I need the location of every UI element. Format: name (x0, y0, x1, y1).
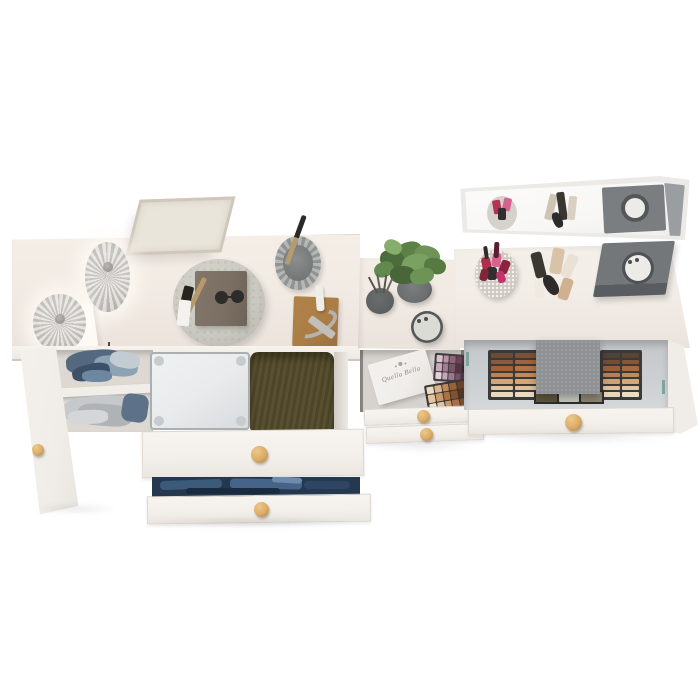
drawer-knob (565, 414, 582, 431)
floor-shadow (475, 434, 675, 442)
floor-shadow (140, 518, 360, 527)
brand-crest (398, 361, 403, 366)
cushion (250, 352, 334, 430)
suitcase-corner (236, 356, 246, 366)
hinge-mark (662, 380, 665, 394)
vanity (452, 176, 700, 438)
notebook-button (231, 290, 244, 303)
kit-eyeshadow-left (488, 350, 540, 400)
round-jar (411, 311, 443, 343)
suitcase (150, 352, 250, 430)
pen-cup (275, 236, 321, 290)
compartment-side (334, 352, 348, 430)
suitcase-corner (154, 416, 164, 426)
lamp-cap (55, 314, 65, 324)
picture-frame (126, 196, 236, 255)
makeup-tubes (530, 248, 586, 308)
lamp-cap (103, 262, 113, 272)
drawer-front-1 (142, 429, 365, 479)
drawer-knob (251, 446, 268, 463)
lipstick-holder (475, 250, 517, 298)
door-knob (32, 444, 44, 456)
vanity-desk-product-render: Quella Bella (0, 0, 700, 700)
floor-shadow (368, 443, 478, 450)
suitcase-corner (236, 416, 246, 426)
tray-items (180, 270, 230, 340)
drawer-knob (420, 428, 433, 441)
jar-on-case (622, 252, 654, 284)
kit-fabric-cover (536, 340, 600, 394)
desk (12, 230, 362, 522)
reed-diffuser (366, 288, 394, 314)
diffuser-sticks (368, 288, 394, 308)
drawer-knob (417, 410, 430, 423)
drawer-knob (254, 502, 269, 517)
vanity-drawer-front (468, 407, 674, 435)
mirror-face (463, 182, 687, 236)
kit-eyeshadow-right (600, 350, 642, 400)
candle (315, 285, 325, 311)
hinge-mark (466, 352, 469, 366)
suitcase-corner (154, 356, 164, 366)
vanity-drawer-interior (464, 340, 668, 410)
wooden-board (292, 296, 339, 348)
small-drawer-interior: Quella Bella (360, 350, 464, 412)
makeup-kit (488, 346, 644, 404)
vanity-mirror (458, 176, 692, 240)
floor-shadow (30, 505, 120, 513)
